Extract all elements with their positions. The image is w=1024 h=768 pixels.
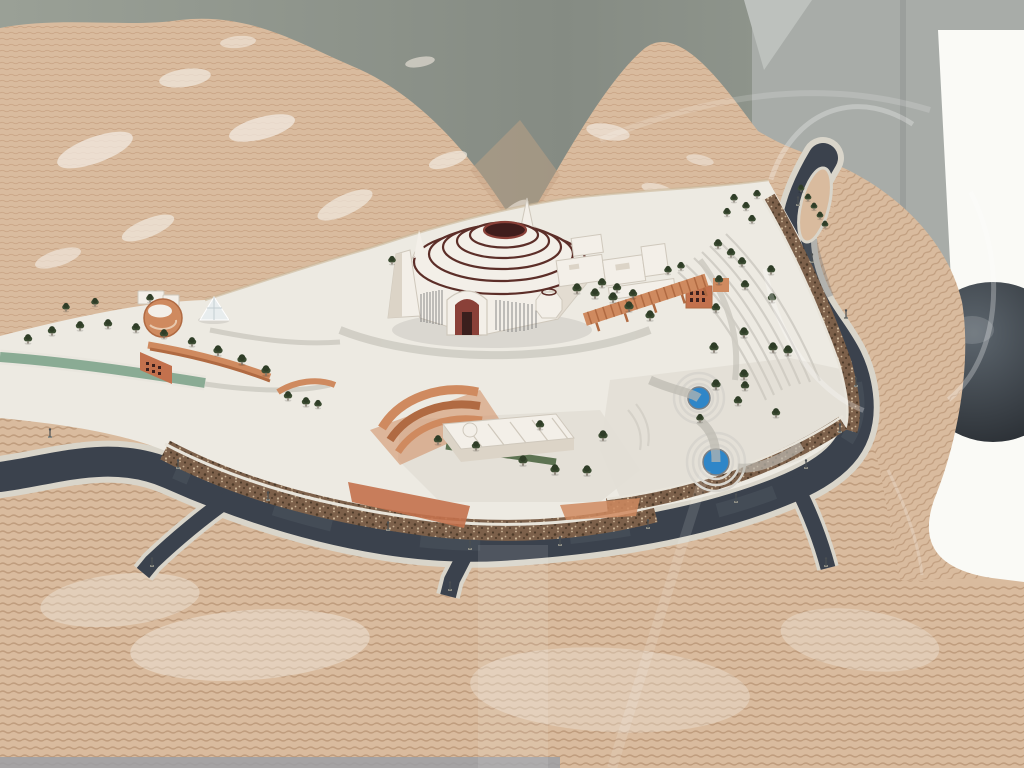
glass-light-band bbox=[478, 545, 548, 768]
monument-portal bbox=[447, 291, 487, 335]
case-base-strip bbox=[0, 757, 560, 768]
model-photo bbox=[0, 0, 1024, 768]
dome-oculus bbox=[484, 222, 526, 238]
scene-svg bbox=[0, 0, 1024, 768]
